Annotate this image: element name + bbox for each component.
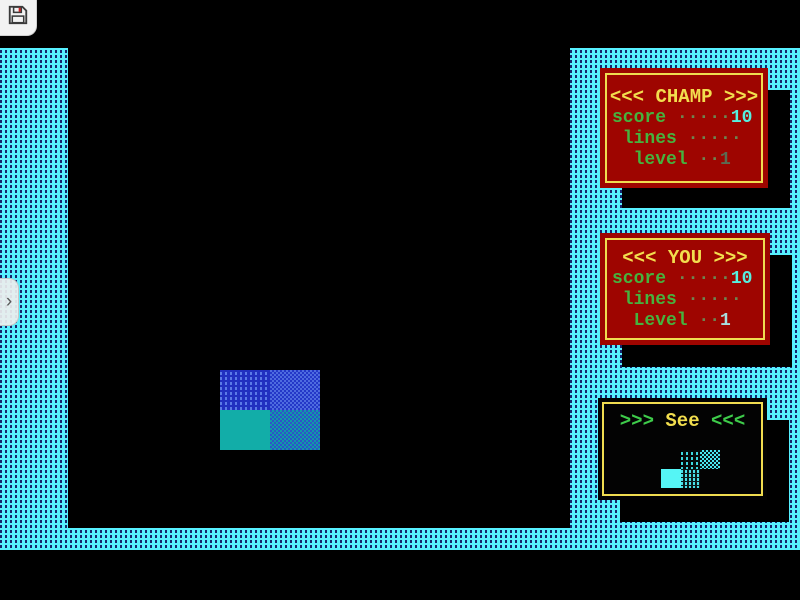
you-score-value: 10 (731, 269, 753, 289)
dots-separator: ·· (688, 311, 720, 331)
chevrons-left-icon: <<< (700, 410, 746, 432)
champ-score-label: score (612, 108, 666, 128)
champ-panel: <<< CHAMP >>> score ·····10 lines ····· … (600, 68, 768, 188)
you-score-row: score ·····10 (600, 269, 770, 289)
champ-score-value: 10 (731, 108, 753, 128)
you-level-label: Level (612, 311, 688, 331)
you-level-value: 1 (720, 311, 731, 331)
you-lines-label: lines (612, 290, 677, 310)
tetromino-cell (270, 370, 320, 410)
you-panel-title: <<< YOU >>> (600, 249, 770, 268)
tetromino-cell (661, 469, 681, 488)
champ-level-label: level (612, 150, 688, 170)
you-level-row: Level ··1 (600, 311, 770, 331)
game-screen: <<< CHAMP >>> score ·····10 lines ····· … (0, 0, 800, 600)
chevrons-right-icon: >>> (620, 410, 666, 432)
champ-level-row: level ··1 (600, 150, 768, 170)
see-title-word: See (665, 410, 699, 432)
champ-level-value: 1 (720, 150, 731, 170)
playfield-border-bottom (0, 528, 800, 550)
dots-separator: ····· (666, 108, 731, 128)
tetromino-cell (270, 410, 320, 450)
floppy-save-icon (7, 4, 29, 31)
you-score-label: score (612, 269, 666, 289)
drawer-handle[interactable]: › (0, 278, 19, 326)
champ-score-row: score ·····10 (600, 108, 768, 128)
dots-separator: ····· (666, 269, 731, 289)
tetromino-cell (220, 410, 270, 450)
champ-lines-row: lines ····· (600, 129, 768, 149)
save-button[interactable] (0, 0, 37, 36)
tetromino-cell (220, 370, 270, 410)
tetromino-cell (681, 469, 700, 488)
you-lines-row: lines ····· (600, 290, 770, 310)
next-piece-panel-title: >>> See <<< (598, 412, 767, 431)
you-panel: <<< YOU >>> score ·····10 lines ····· Le… (600, 233, 770, 345)
dots-separator: ····· (677, 290, 742, 310)
chevron-right-icon: › (6, 292, 12, 311)
champ-lines-label: lines (612, 129, 677, 149)
dots-separator: ·· (688, 150, 720, 170)
tetromino-cell (700, 450, 720, 469)
tetromino-cell (681, 450, 700, 469)
champ-panel-title: <<< CHAMP >>> (600, 88, 768, 107)
dots-separator: ····· (677, 129, 742, 149)
